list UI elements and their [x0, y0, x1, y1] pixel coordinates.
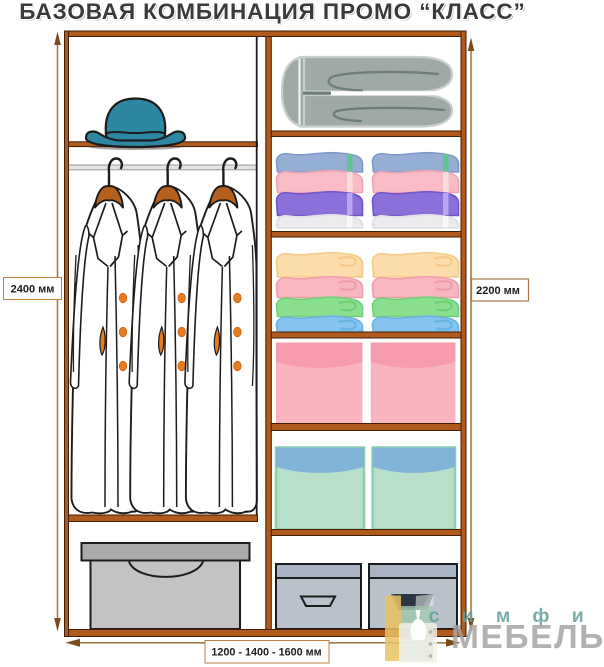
- svg-text:МЕБЕЛЬ: МЕБЕЛЬ: [451, 619, 604, 656]
- svg-text:2400 мм: 2400 мм: [11, 284, 55, 296]
- svg-text:1200 - 1400 - 1600 мм: 1200 - 1400 - 1600 мм: [211, 647, 321, 659]
- svg-text:БАЗОВАЯ КОМБИНАЦИЯ ПРОМО “КЛАС: БАЗОВАЯ КОМБИНАЦИЯ ПРОМО “КЛАСС”: [19, 0, 525, 24]
- svg-text:2200 мм: 2200 мм: [476, 285, 520, 297]
